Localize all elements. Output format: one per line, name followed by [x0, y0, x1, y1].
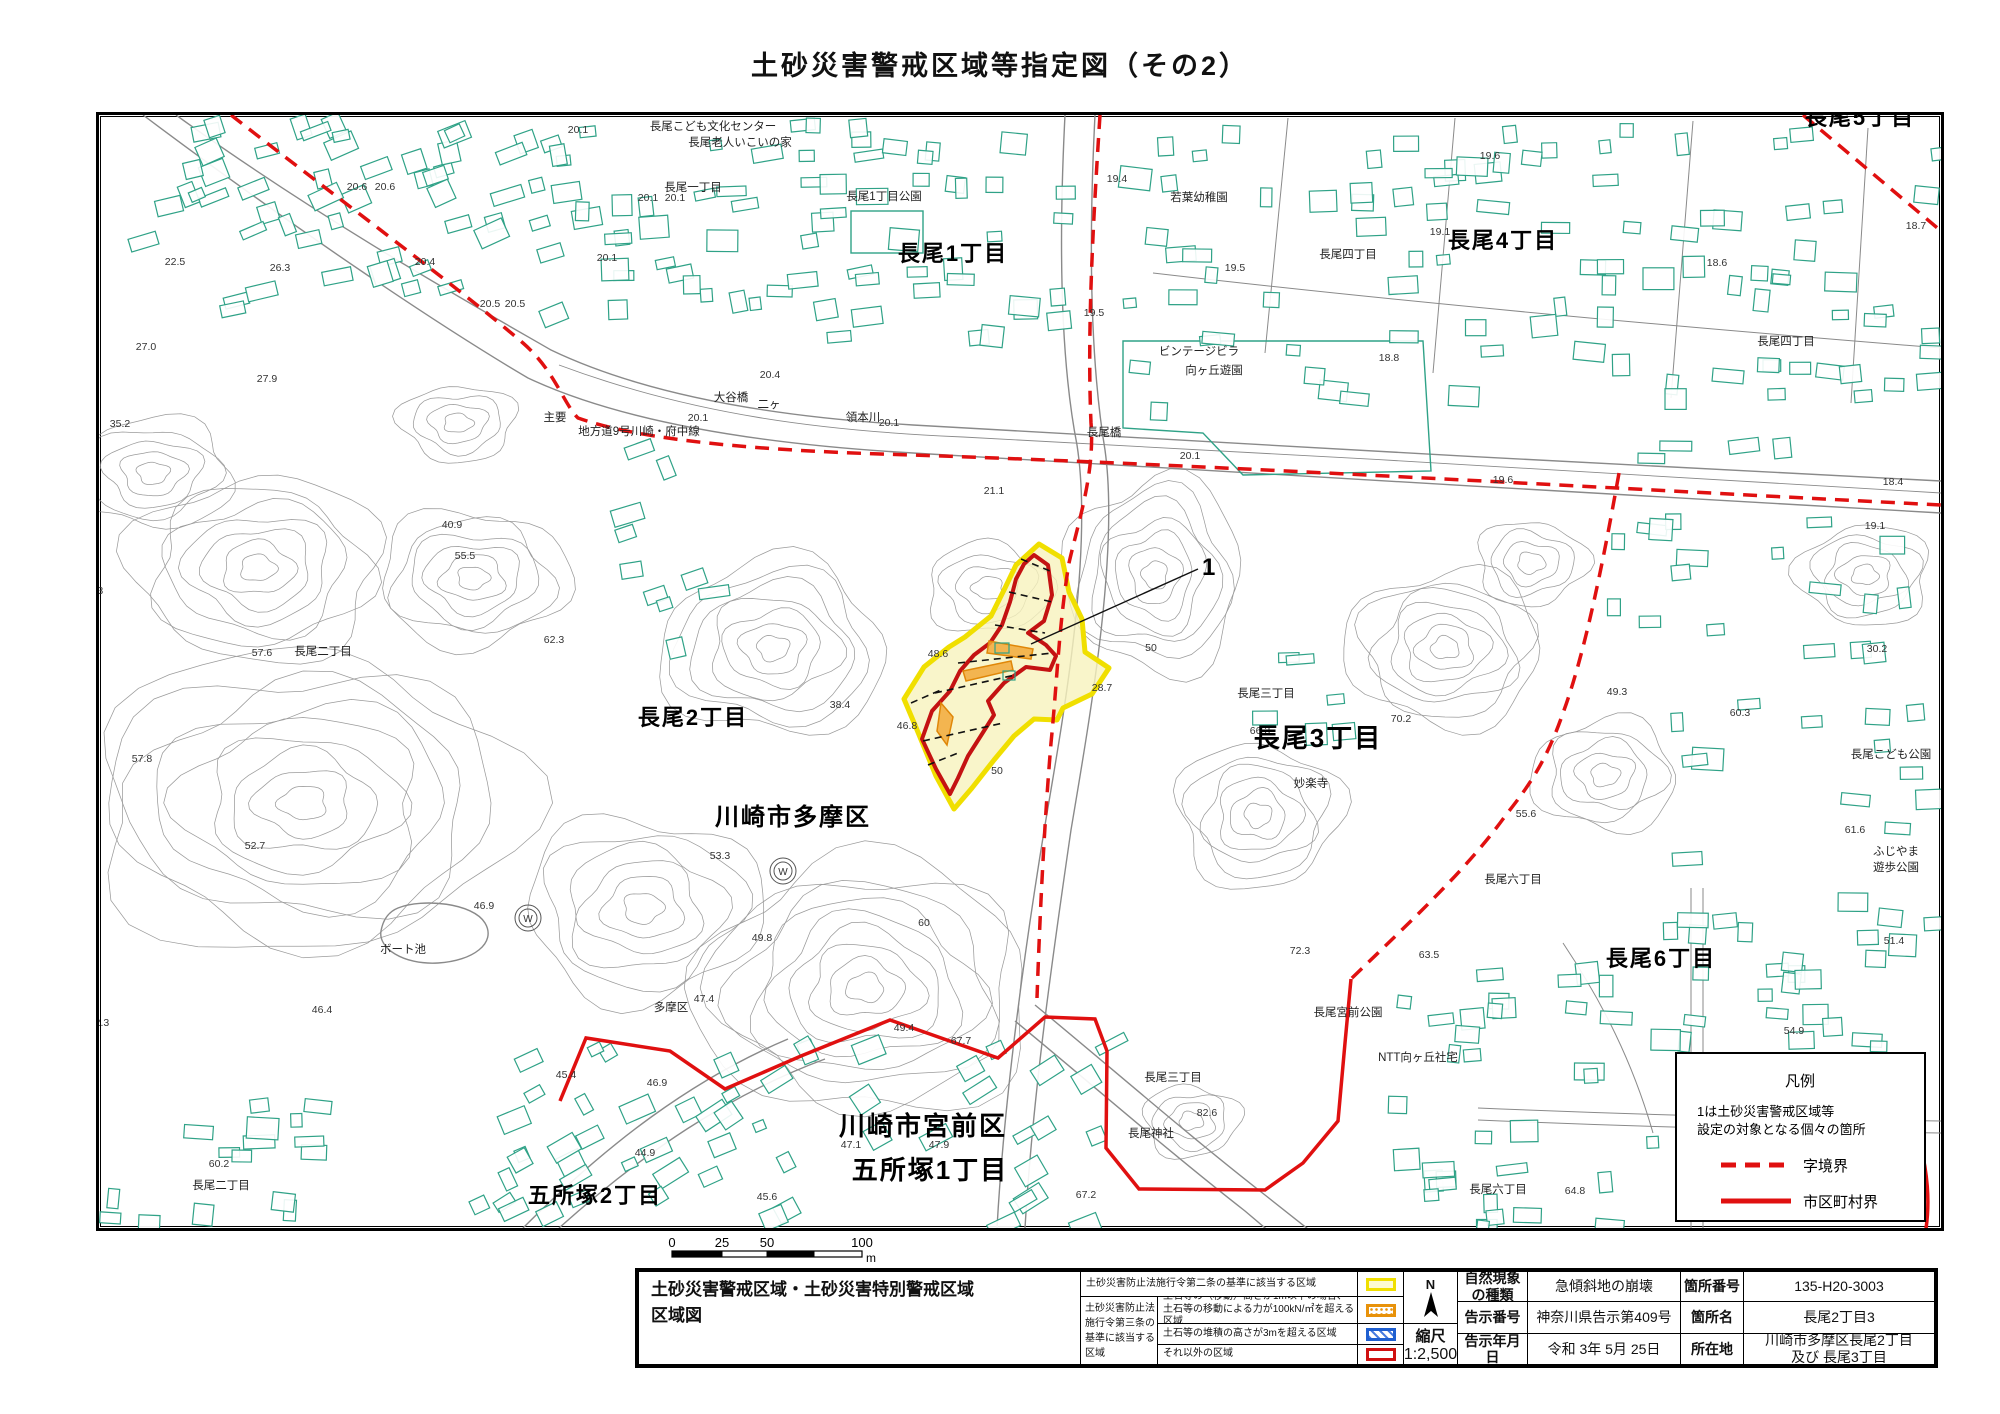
- building: [1030, 1055, 1064, 1085]
- spot-height: 50: [991, 765, 1003, 777]
- contour-ring: [241, 554, 279, 581]
- building: [1202, 331, 1235, 346]
- info-value-notice-number: 神奈川県告示第409号: [1527, 1301, 1681, 1334]
- building: [1477, 968, 1504, 982]
- place-label: ふじやま: [1873, 845, 1919, 858]
- info-label-phenomenon: 自然現象 の種類: [1457, 1271, 1528, 1302]
- building: [605, 233, 632, 245]
- contour-ring: [1173, 743, 1351, 889]
- info-value-notice-date: 令和 3年 5月 25日: [1527, 1333, 1681, 1365]
- building: [469, 1195, 490, 1215]
- info-label-location: 所在地: [1680, 1333, 1744, 1365]
- building: [1448, 386, 1479, 407]
- orange-zone-swatch: [1366, 1304, 1396, 1317]
- spot-height: 48.6: [928, 648, 949, 660]
- spot-height: 60: [918, 917, 930, 929]
- building: [986, 177, 1003, 192]
- building: [1593, 174, 1618, 186]
- spot-height: 70.2: [1391, 713, 1412, 725]
- place-label: 主要: [544, 411, 567, 424]
- legend-orange-desc: 土石等の（移動）高さが1m以下の場合、 土石等の移動による力が100kN/㎡を超…: [1157, 1296, 1358, 1324]
- info-label-site-number: 箇所番号: [1680, 1271, 1744, 1302]
- contour-ring: [275, 786, 326, 819]
- contour-ring: [249, 771, 347, 840]
- yellow-zone-swatch: [1366, 1278, 1396, 1291]
- building: [656, 456, 676, 480]
- contour-ring: [1591, 763, 1621, 787]
- building: [1205, 267, 1218, 283]
- place-label: 長尾宮前公園: [1314, 1005, 1383, 1019]
- spot-height: 20.1: [688, 412, 709, 424]
- contour-ring: [1344, 564, 1540, 735]
- building: [1056, 186, 1075, 199]
- building: [622, 1157, 639, 1171]
- well-w: W: [523, 914, 533, 925]
- place-label: 地方道9号川崎・府中線: [578, 424, 700, 438]
- legend-swatch-red-cell: [1357, 1344, 1404, 1365]
- place-label: 長尾三丁目: [1237, 687, 1295, 700]
- building: [1393, 187, 1414, 206]
- building: [1794, 240, 1816, 261]
- spot-height: 45.6: [757, 1191, 778, 1203]
- spot-height: 43.3: [99, 585, 103, 597]
- building: [575, 202, 589, 221]
- building: [1906, 704, 1924, 722]
- building: [240, 221, 267, 239]
- bottom-info-table: 土砂災害警戒区域・土砂災害特別警戒区域 区域図 土砂災害防止法施行令第二条の基準…: [635, 1268, 1938, 1368]
- building: [1366, 150, 1382, 169]
- building: [1677, 913, 1708, 928]
- scale-bar-ticks: 02550100: [668, 1235, 872, 1250]
- contour-ring: [1244, 803, 1272, 829]
- building: [100, 1212, 121, 1224]
- contour-ring: [722, 608, 821, 690]
- building: [1598, 1171, 1613, 1192]
- spot-height: 72.3: [1290, 945, 1311, 957]
- building: [1554, 297, 1567, 316]
- building: [514, 1049, 543, 1073]
- place-label: 多摩区: [654, 1000, 689, 1014]
- legend-note-1: 1は土砂災害警戒区域等: [1697, 1104, 1834, 1119]
- building: [814, 299, 839, 321]
- building: [1766, 1008, 1788, 1020]
- building: [291, 1113, 303, 1127]
- spot-height: 27.9: [257, 373, 278, 385]
- building: [1880, 536, 1905, 554]
- building: [1786, 204, 1811, 221]
- contour-ring: [1430, 635, 1459, 658]
- building: [1425, 168, 1452, 177]
- contour-ring: [1142, 1084, 1244, 1160]
- well-w: W: [778, 867, 788, 878]
- district-label: 五所塚1丁目: [852, 1155, 1008, 1185]
- contour-ring: [970, 577, 1002, 600]
- spot-height: 18.6: [1707, 257, 1728, 269]
- legend-swatch-yellow-cell: [1357, 1271, 1404, 1297]
- spot-height: 45.4: [556, 1069, 577, 1081]
- building: [1597, 307, 1613, 327]
- building: [1008, 296, 1040, 317]
- building: [445, 215, 472, 234]
- building: [957, 1056, 985, 1082]
- scale-tick: 50: [760, 1235, 774, 1250]
- building: [328, 213, 343, 230]
- building: [1804, 644, 1835, 659]
- building: [1602, 276, 1616, 295]
- place-label: 長尾こども公園: [1851, 748, 1932, 761]
- spot-height: 19.4: [1107, 173, 1128, 185]
- scale-value: 1:2,500: [1404, 1346, 1457, 1364]
- contour-ring: [444, 413, 475, 432]
- building: [1356, 217, 1386, 236]
- building: [1123, 298, 1136, 308]
- contour-ring: [1518, 552, 1546, 575]
- building: [1510, 1120, 1538, 1142]
- building: [1260, 188, 1272, 207]
- spot-height: 62.3: [544, 634, 565, 646]
- info-value-phenomenon: 急傾斜地の崩壊: [1527, 1271, 1681, 1302]
- building: [537, 243, 564, 263]
- building: [1757, 358, 1779, 373]
- building: [801, 233, 819, 249]
- spot-height: 20.5: [480, 298, 501, 310]
- legend-red-desc: それ以外の区域: [1157, 1344, 1358, 1365]
- legend-article3-label: 土砂災害防止法 施行令第三条の 基準に該当する 区域: [1080, 1296, 1158, 1365]
- blue-zone-swatch: [1366, 1328, 1396, 1341]
- building: [1397, 995, 1412, 1009]
- building: [304, 1099, 332, 1115]
- building: [1424, 1189, 1439, 1202]
- building: [947, 274, 974, 286]
- spot-height: 18.7: [1906, 220, 1927, 232]
- building: [1409, 251, 1423, 267]
- contour-ring: [162, 499, 347, 641]
- building: [250, 1098, 270, 1113]
- spot-height: 50: [1145, 642, 1157, 654]
- building: [1916, 372, 1941, 390]
- building: [1701, 210, 1725, 226]
- contour-ring: [427, 404, 490, 443]
- building: [1350, 182, 1373, 203]
- building: [539, 302, 569, 328]
- spot-height: 52.3: [99, 1017, 109, 1029]
- building: [183, 160, 204, 180]
- building: [1751, 266, 1768, 281]
- district-label: 長尾3丁目: [1254, 723, 1382, 753]
- building: [551, 181, 582, 203]
- contour-ring: [1561, 737, 1647, 810]
- building: [1801, 716, 1822, 728]
- contour-ring: [1129, 548, 1184, 604]
- place-label: 長尾六丁目: [1484, 873, 1542, 886]
- building: [507, 1148, 533, 1173]
- spot-height: 20.1: [1180, 450, 1201, 462]
- building: [1476, 1220, 1490, 1228]
- building: [1841, 793, 1871, 807]
- contour-ring: [393, 387, 519, 464]
- building: [1481, 345, 1504, 357]
- building: [1647, 1136, 1659, 1148]
- building: [1327, 694, 1345, 705]
- building: [1671, 564, 1691, 581]
- scale-tick: 25: [715, 1235, 729, 1250]
- contour-ring: [1413, 624, 1473, 669]
- scale-tick: 100: [851, 1235, 873, 1250]
- building: [245, 281, 278, 302]
- map-frame: W W 1 20.119.618.719.120.620.620.120.122…: [96, 112, 1944, 1231]
- place-label: 長尾二丁目: [294, 645, 352, 658]
- spot-height: 20.1: [638, 192, 659, 204]
- building: [1286, 654, 1314, 665]
- spot-height: 27.0: [136, 341, 157, 353]
- spot-height: 49.8: [752, 932, 773, 944]
- building: [1878, 908, 1903, 927]
- building: [1286, 345, 1300, 357]
- contour-ring: [109, 675, 491, 958]
- building: [1671, 713, 1684, 732]
- building: [1676, 549, 1708, 566]
- building: [1671, 226, 1699, 242]
- spot-height: 20.1: [568, 124, 589, 136]
- contour-ring: [808, 944, 929, 1031]
- place-label: ボート池: [380, 943, 426, 956]
- spot-height: 54.9: [1784, 1025, 1805, 1037]
- building: [1463, 1049, 1481, 1062]
- building: [1612, 534, 1625, 550]
- building: [1069, 1213, 1102, 1228]
- river-nikaryo-honkawa: [559, 365, 1941, 493]
- building: [1558, 974, 1581, 987]
- spot-height: 26.3: [270, 262, 291, 274]
- building: [1388, 1096, 1407, 1113]
- building: [138, 1215, 160, 1228]
- building: [1623, 221, 1641, 234]
- building: [1857, 930, 1878, 945]
- building: [608, 300, 627, 320]
- building: [1573, 341, 1605, 362]
- building: [851, 306, 883, 327]
- building: [612, 195, 632, 216]
- building: [1047, 311, 1072, 331]
- district-label: 川崎市宮前区: [839, 1111, 1007, 1141]
- building: [1608, 599, 1621, 616]
- building: [1129, 360, 1150, 374]
- building: [1738, 923, 1753, 942]
- building: [1712, 368, 1744, 384]
- spot-height: 20.6: [347, 181, 368, 193]
- building: [529, 215, 550, 231]
- place-label: ビンテージビラ: [1159, 345, 1239, 358]
- building: [1728, 275, 1743, 295]
- spot-height: 82.6: [1197, 1107, 1218, 1119]
- building: [1870, 1041, 1887, 1052]
- building: [851, 1035, 886, 1065]
- building: [708, 1133, 736, 1158]
- contour-ring: [624, 894, 666, 925]
- spot-height: 20.6: [375, 181, 396, 193]
- building: [1150, 402, 1167, 420]
- building: [987, 1212, 1021, 1228]
- building: [1639, 616, 1660, 628]
- building: [1663, 922, 1677, 939]
- building: [1728, 437, 1760, 454]
- contour-ring: [215, 738, 412, 875]
- building: [827, 331, 852, 344]
- building: [1145, 228, 1168, 247]
- scale-unit: m: [866, 1251, 876, 1265]
- building: [1665, 389, 1686, 410]
- spot-height: 49.4: [894, 1022, 915, 1034]
- building: [246, 1117, 279, 1140]
- building: [980, 325, 1004, 348]
- contour-ring: [199, 529, 307, 613]
- spot-height: 22.5: [165, 256, 186, 268]
- building: [232, 1150, 252, 1162]
- building: [1477, 200, 1510, 215]
- info-label-notice-number: 告示番号: [1457, 1301, 1528, 1334]
- building: [683, 276, 700, 294]
- spot-height: 40.9: [442, 519, 463, 531]
- contour-ring: [234, 745, 378, 849]
- spot-height: 55.5: [455, 550, 476, 562]
- spot-height: 19.1: [1865, 520, 1886, 532]
- building: [322, 267, 353, 286]
- building: [1897, 587, 1911, 609]
- hazard-map-page: { "title": "土砂災害警戒区域等指定図（その2）", "map": {…: [0, 0, 2000, 1414]
- building: [1790, 362, 1811, 374]
- place-label: 長尾神社: [1128, 1126, 1174, 1140]
- building: [1597, 260, 1623, 274]
- spot-height: 21.1: [984, 485, 1005, 497]
- building: [1838, 893, 1868, 912]
- contour-ring: [151, 489, 382, 648]
- building: [917, 150, 933, 164]
- building: [1584, 1068, 1598, 1083]
- contour-ring: [756, 635, 790, 662]
- spot-height: 38.4: [830, 699, 851, 711]
- building: [776, 1152, 796, 1173]
- contour-ring: [224, 539, 299, 592]
- building: [1393, 1148, 1420, 1171]
- building: [1455, 1025, 1480, 1043]
- building: [1651, 1029, 1681, 1050]
- building: [1675, 133, 1689, 156]
- building: [1340, 391, 1370, 406]
- contour-ring: [830, 956, 906, 1016]
- building: [1863, 594, 1878, 614]
- building: [184, 1125, 214, 1140]
- building: [107, 1188, 120, 1208]
- place-label: 長尾1丁目公園: [846, 190, 921, 203]
- building: [731, 197, 758, 212]
- building: [529, 177, 545, 193]
- spot-height: 20.1: [879, 417, 900, 429]
- spot-height: 19.5: [1225, 262, 1246, 274]
- building: [1600, 1011, 1632, 1025]
- spot-height: 18.8: [1379, 352, 1400, 364]
- building: [1542, 143, 1557, 158]
- district-label: 長尾6丁目: [1606, 946, 1716, 971]
- marker-label: 1: [1202, 554, 1215, 581]
- spot-height: 67.2: [1076, 1189, 1097, 1201]
- building: [1050, 288, 1066, 306]
- legend-article2-desc: 土砂災害防止法施行令第二条の基準に該当する区域: [1080, 1271, 1358, 1297]
- spot-height: 60.3: [1730, 707, 1751, 719]
- building: [1304, 367, 1325, 385]
- contour-ring: [136, 462, 171, 484]
- building: [1015, 1155, 1048, 1187]
- building: [1684, 1015, 1706, 1028]
- building: [495, 142, 526, 165]
- building: [1643, 268, 1674, 290]
- contour-ring: [123, 671, 461, 919]
- spot-height: 51.4: [1884, 935, 1905, 947]
- building: [1599, 975, 1613, 997]
- contour-ring: [1182, 757, 1331, 879]
- building: [1753, 289, 1770, 312]
- map-title-line1: 土砂災害警戒区域・土砂災害特別警戒区域: [651, 1277, 1080, 1303]
- contour-ring: [388, 517, 560, 634]
- contour-ring: [1789, 525, 1929, 625]
- contour-ring: [599, 877, 685, 939]
- spot-height: 20.1: [597, 252, 618, 264]
- building: [707, 230, 738, 252]
- contour-ring: [576, 861, 704, 954]
- building: [1854, 390, 1872, 403]
- building: [1503, 125, 1518, 143]
- building: [271, 1192, 295, 1212]
- building: [619, 1094, 655, 1124]
- building: [1772, 274, 1790, 285]
- contour-ring: [100, 441, 205, 508]
- building: [615, 524, 637, 542]
- place-label: 長尾老人いこいの家: [688, 135, 792, 149]
- building: [1158, 137, 1174, 156]
- contour-ring: [570, 841, 732, 968]
- building: [1309, 190, 1337, 212]
- building: [1807, 517, 1832, 528]
- building: [1672, 851, 1702, 866]
- building: [882, 139, 907, 156]
- building: [296, 230, 322, 249]
- building: [1900, 767, 1922, 780]
- building: [1823, 1017, 1843, 1036]
- building: [1192, 150, 1207, 162]
- building: [1683, 256, 1705, 277]
- building: [1466, 320, 1486, 336]
- building: [1263, 292, 1279, 307]
- place-label: 妙楽寺: [1294, 776, 1329, 790]
- building: [1768, 388, 1786, 400]
- legend-title: 凡例: [1785, 1073, 1815, 1090]
- contour-ring: [1552, 732, 1671, 823]
- building: [1865, 708, 1890, 725]
- building: [549, 144, 567, 167]
- building: [278, 214, 296, 236]
- spot-height: 19.6: [1480, 150, 1501, 162]
- legend-note-2: 設定の対象となる個々の箇所: [1697, 1122, 1866, 1137]
- spot-height: 55.6: [1516, 808, 1537, 820]
- spot-height: 57.8: [132, 753, 153, 765]
- place-label: NTT向ヶ丘社宅: [1378, 1050, 1458, 1064]
- place-label: 長尾六丁目: [1469, 1183, 1527, 1196]
- contour-ring: [1834, 556, 1890, 596]
- place-label: 長尾四丁目: [1757, 335, 1815, 348]
- building: [914, 283, 941, 299]
- spot-height: 60.2: [209, 1158, 230, 1170]
- building: [220, 301, 246, 318]
- scale-bar: 02550100 m: [650, 1228, 910, 1266]
